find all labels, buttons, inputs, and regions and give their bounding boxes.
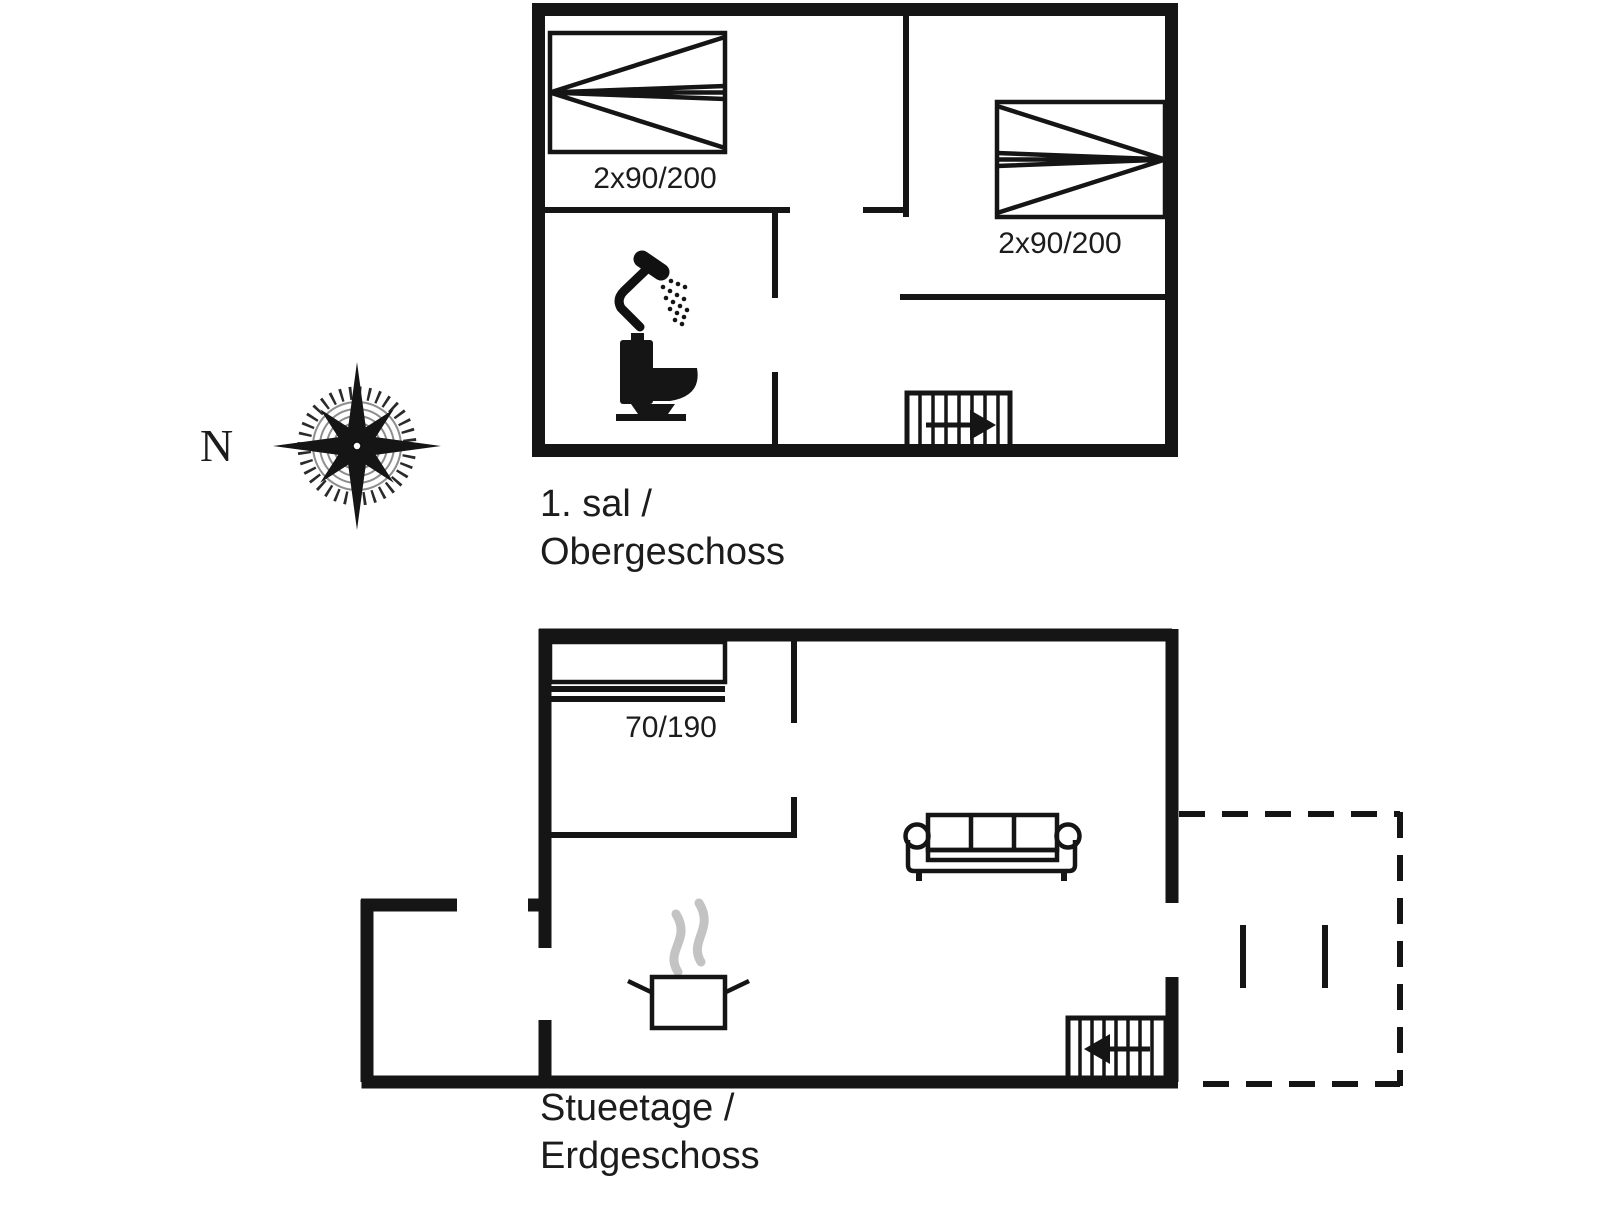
ground-floor-title-line1: Stueetage /: [540, 1087, 735, 1129]
compass-north-label: N: [200, 420, 233, 471]
stairs-direction-arrow: [1084, 1034, 1110, 1064]
upper-floor-title-line2: Obergeschoss: [540, 531, 785, 573]
compass-rose-icon: [273, 362, 441, 530]
single-bed-icon: [550, 642, 725, 699]
double-bed-icon: [997, 102, 1165, 217]
bed-size-label: 70/190: [625, 711, 717, 744]
ground-floor-plan: 70/190: [361, 629, 1400, 1177]
ground-floor-title-line2: Erdgeschoss: [540, 1135, 760, 1177]
bed-size-label: 2x90/200: [593, 162, 716, 195]
terrace-step-marks: [1243, 925, 1325, 988]
floor-plan-canvas: N 2x90/200 2x90/200: [0, 0, 1606, 1205]
double-bed-icon: [550, 33, 725, 152]
terrace-outline: [1179, 812, 1400, 1086]
shower-icon: [619, 259, 689, 327]
sofa-icon: [906, 815, 1080, 881]
stairs-direction-arrow: [970, 410, 996, 440]
bed-size-label: 2x90/200: [998, 227, 1121, 260]
staircase-down-icon: [1068, 1018, 1166, 1080]
upper-floor-plan: 2x90/200 2x90/200: [539, 10, 1172, 574]
shower-spray-dots: [661, 275, 690, 327]
toilet-icon: [616, 333, 698, 421]
upper-floor-title-line1: 1. sal /: [540, 483, 652, 525]
staircase-up-icon: [907, 393, 1010, 450]
cooking-pot-icon: [628, 903, 749, 1028]
steam-icon: [674, 903, 704, 972]
